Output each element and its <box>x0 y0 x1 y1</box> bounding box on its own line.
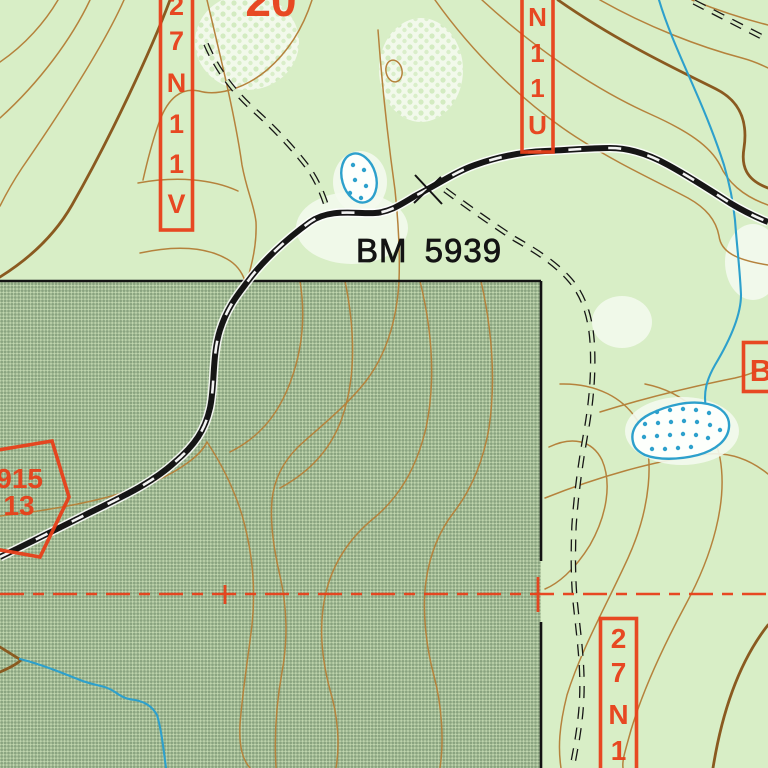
road-label-char: V <box>167 189 185 219</box>
road-label-char: N <box>528 2 547 32</box>
road-label-char: 1 <box>530 38 544 68</box>
road-label-char: 7 <box>169 26 184 56</box>
road-label-char: 2 <box>169 0 184 21</box>
topo-map-canvas[interactable]: 20 2 7 N 1 1 V N 1 1 U 2 7 N 1 <box>0 0 768 768</box>
road-label-char: 2 <box>611 623 627 654</box>
road-label-char: 1 <box>169 109 184 139</box>
road-label-char: B <box>750 353 768 388</box>
road-label-char: 1 <box>169 149 184 179</box>
topo-map-svg: 20 2 7 N 1 1 V N 1 1 U 2 7 N 1 <box>0 0 768 768</box>
road-label-char: N <box>608 699 628 730</box>
shaded-area-overlay <box>0 281 541 768</box>
road-label-char: 1 <box>530 73 544 103</box>
road-label-char: U <box>528 110 547 140</box>
benchmark-label: BM 5939 <box>356 232 502 269</box>
road-label-char: 7 <box>611 657 627 688</box>
route-shield-line2: 13 <box>3 490 34 521</box>
road-label-char: N <box>167 68 187 98</box>
section-number-label: 20 <box>245 0 296 26</box>
road-label-char: 1 <box>611 735 627 766</box>
